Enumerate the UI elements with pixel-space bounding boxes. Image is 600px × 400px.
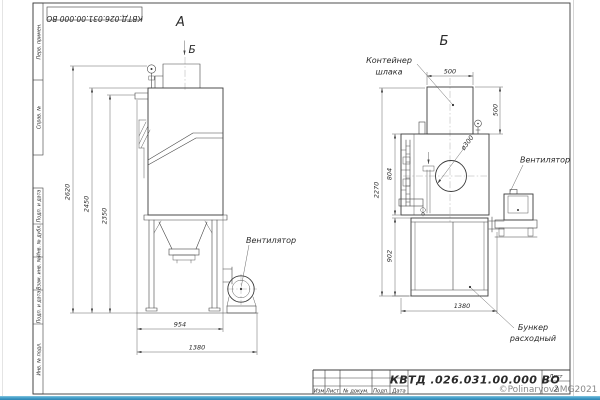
view-b: Б: [366, 34, 570, 343]
tb-col-izm: Изм: [314, 388, 325, 394]
dim-1380-a: 1380: [189, 344, 206, 352]
view-b-title: Б: [440, 34, 449, 49]
dim-hole-diameter: ø300: [459, 134, 476, 153]
dim-1380-b: 1380: [454, 302, 471, 310]
hopper-label-line2: расходный: [509, 334, 556, 343]
view-a: А Б: [64, 15, 297, 355]
hopper-label-line1: Бункер: [518, 323, 548, 332]
side-label-podp-data-1: Подп. и дата: [37, 190, 43, 223]
machine-b-outline: [399, 87, 537, 296]
bottom-blue-strip: [0, 396, 600, 400]
tb-col-podp: Подп.: [373, 388, 389, 394]
ladder: [406, 140, 410, 206]
top-designation-text: КВТД.026.031.00.000 ВО: [46, 14, 142, 23]
container-label-line2: шлака: [375, 68, 402, 77]
view-b-dimensions: 500 500 2270 804 902 1380 ø300: [373, 68, 504, 315]
tb-col-dokum: № докум.: [342, 388, 369, 394]
view-a-dimensions: 2620 2450 2350 954 1380: [64, 66, 258, 355]
platform: [399, 199, 423, 206]
fan-label-b: Вентилятор: [520, 156, 570, 165]
dim-500-width: 500: [444, 68, 456, 76]
view-a-title: А: [175, 15, 185, 30]
dim-804: 804: [386, 168, 394, 180]
hopper-a: [159, 222, 207, 249]
machine-a-outline: [135, 64, 258, 313]
machine-a-body: [148, 88, 223, 215]
drawing-sheet: Перв. примен. Справ. № Подп. и дата Инв.…: [0, 0, 600, 400]
dim-902: 902: [386, 250, 394, 262]
dim-500-height: 500: [492, 104, 500, 116]
dim-954: 954: [174, 321, 186, 329]
container-label-line1: Контейнер: [366, 56, 412, 65]
fan-duct-b: [489, 217, 504, 232]
fan-label-a: Вентилятор: [246, 236, 296, 245]
drawing-canvas: Перв. примен. Справ. № Подп. и дата Инв.…: [0, 0, 600, 400]
side-label-sprav-n: Справ. №: [37, 106, 43, 129]
inclined-door: [148, 133, 223, 165]
side-label-perv-primen: Перв. примен.: [37, 23, 43, 59]
tb-col-data: Дата: [391, 388, 405, 394]
fan-unit-b: [504, 194, 533, 220]
dim-2270: 2270: [373, 182, 381, 199]
side-label-inv-podl: Инв. № подл.: [37, 342, 43, 375]
side-label-podp-data-2: Подп. и дата: [37, 291, 43, 324]
dim-2620: 2620: [64, 184, 72, 201]
fan-base: [227, 306, 256, 313]
frame-border: [33, 3, 570, 394]
view-b-labels: Контейнер шлака Вентилятор Бункер расход…: [366, 56, 570, 343]
inlet-pipe-stub: [135, 93, 148, 99]
tb-sheet-label: Лист: [548, 374, 563, 380]
view-direction-label: Б: [189, 44, 196, 56]
tb-col-list: Лист: [325, 388, 340, 394]
frame-legs: [149, 220, 217, 308]
dim-2450: 2450: [83, 196, 91, 213]
side-label-inv-dubl: Инв. № дубл.: [37, 224, 43, 257]
frame: Перв. примен. Справ. № Подп. и дата Инв.…: [33, 3, 570, 394]
dim-2350: 2350: [101, 208, 109, 225]
watermark: ©PolinaryovaMG2021: [499, 385, 598, 395]
side-label-vzam-inv: Взам. инв. №: [37, 257, 43, 290]
supply-hopper: [411, 218, 488, 296]
